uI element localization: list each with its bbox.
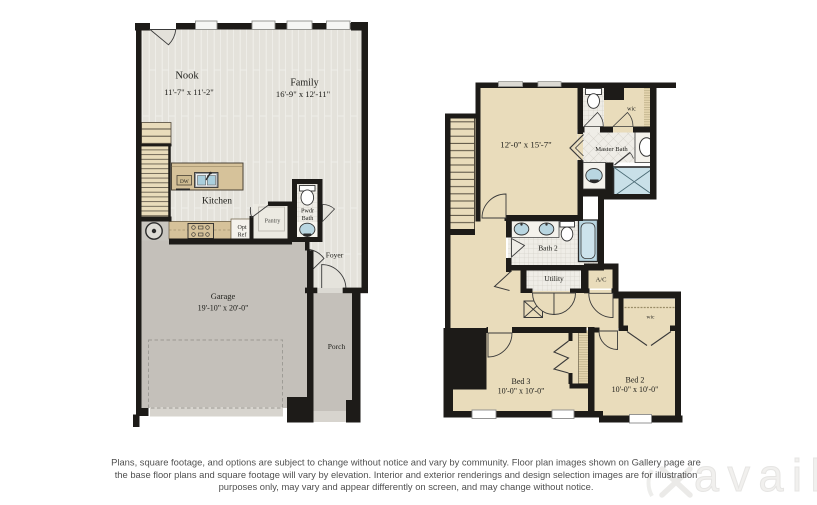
svg-text:Master Bath: Master Bath: [595, 146, 628, 153]
svg-text:Family: Family: [290, 78, 318, 89]
svg-text:10'-0" x 10'-0": 10'-0" x 10'-0": [612, 385, 659, 394]
svg-text:wic: wic: [627, 107, 636, 113]
svg-text:Foyer: Foyer: [326, 251, 344, 260]
svg-text:avail: avail: [694, 450, 817, 500]
svg-text:Bath 2: Bath 2: [538, 244, 558, 253]
svg-text:Garage: Garage: [211, 291, 236, 301]
svg-text:Kitchen: Kitchen: [202, 197, 232, 207]
svg-text:Bed 2: Bed 2: [626, 376, 645, 385]
svg-text:Plans, square footage, and opt: Plans, square footage, and options are s…: [111, 457, 701, 468]
svg-text:12'-0" x 15'-7": 12'-0" x 15'-7": [500, 140, 552, 150]
svg-text:Utility: Utility: [544, 274, 564, 283]
svg-text:DW: DW: [180, 179, 189, 185]
svg-text:10'-0" x 10'-0": 10'-0" x 10'-0": [498, 387, 545, 396]
svg-text:Ref: Ref: [238, 232, 247, 239]
svg-text:Pwdr: Pwdr: [301, 208, 314, 215]
svg-text:Opt: Opt: [238, 225, 247, 231]
svg-text:purposes only, may vary and ap: purposes only, may vary and appear diffe…: [219, 481, 594, 492]
svg-text:wic: wic: [647, 315, 656, 321]
svg-text:Porch: Porch: [328, 342, 346, 351]
svg-text:Pantry: Pantry: [265, 219, 281, 225]
svg-text:19'-10" x 20'-0": 19'-10" x 20'-0": [198, 304, 249, 313]
svg-text:Bed 3: Bed 3: [512, 377, 531, 386]
svg-text:Bath: Bath: [302, 215, 315, 222]
svg-text:A/C: A/C: [596, 277, 607, 284]
svg-text:Nook: Nook: [175, 71, 199, 82]
svg-text:11'-7" x 11'-2": 11'-7" x 11'-2": [164, 87, 214, 97]
svg-text:16'-9" x 12'-11": 16'-9" x 12'-11": [276, 89, 330, 99]
svg-text:the base floor plans and squar: the base floor plans and square footage …: [115, 469, 698, 480]
